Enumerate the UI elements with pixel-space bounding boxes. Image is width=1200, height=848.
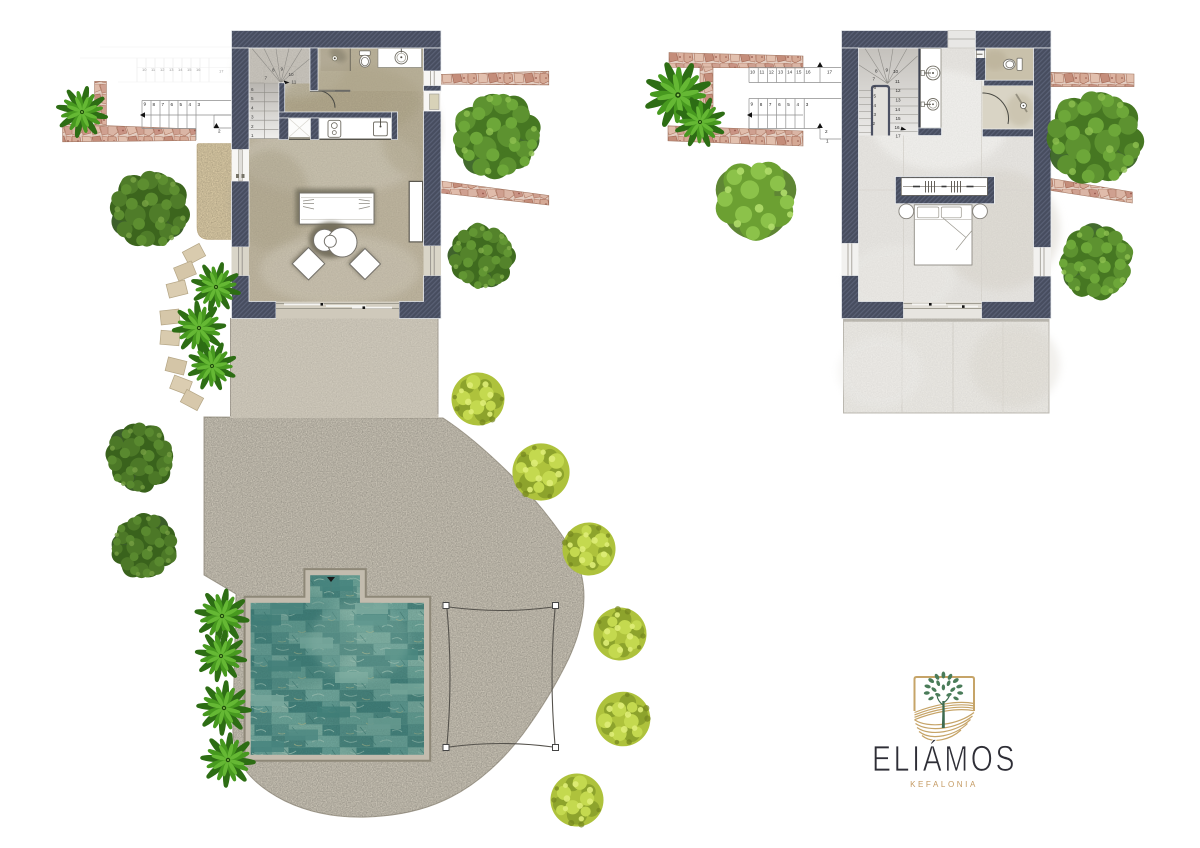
svg-text:ELIÁMOS: ELIÁMOS (872, 738, 1017, 779)
svg-text:KEFALONIA: KEFALONIA (910, 780, 978, 789)
svg-text:13: 13 (896, 98, 902, 103)
svg-text:10: 10 (142, 67, 147, 72)
svg-text:4: 4 (874, 103, 877, 108)
svg-text:10: 10 (893, 69, 899, 74)
svg-text:7: 7 (769, 102, 772, 107)
svg-text:2: 2 (251, 124, 254, 129)
svg-text:16: 16 (196, 67, 201, 72)
svg-text:6: 6 (874, 85, 877, 90)
svg-text:3: 3 (251, 115, 254, 120)
svg-text:12: 12 (769, 70, 775, 75)
svg-text:9: 9 (144, 102, 147, 107)
svg-text:1: 1 (251, 133, 254, 138)
svg-text:7: 7 (265, 76, 268, 81)
svg-text:6: 6 (251, 87, 254, 92)
svg-text:5: 5 (251, 96, 254, 101)
svg-text:15: 15 (187, 67, 192, 72)
svg-text:5: 5 (787, 102, 790, 107)
svg-text:13: 13 (169, 67, 174, 72)
svg-text:4: 4 (797, 102, 800, 107)
svg-text:12: 12 (896, 88, 902, 93)
svg-text:5: 5 (180, 102, 183, 107)
svg-text:14: 14 (178, 67, 183, 72)
svg-text:2: 2 (825, 129, 828, 134)
svg-text:14: 14 (787, 70, 793, 75)
svg-text:14: 14 (895, 107, 901, 112)
svg-text:4: 4 (189, 102, 192, 107)
svg-text:16: 16 (806, 70, 812, 75)
svg-text:9: 9 (886, 68, 889, 73)
svg-text:12: 12 (160, 67, 165, 72)
svg-text:6: 6 (171, 102, 174, 107)
svg-text:17: 17 (896, 134, 902, 139)
svg-text:3: 3 (806, 102, 809, 107)
svg-text:2: 2 (873, 121, 876, 126)
svg-text:9: 9 (281, 67, 284, 72)
svg-text:8: 8 (272, 68, 275, 73)
svg-text:4: 4 (251, 106, 254, 111)
svg-text:11: 11 (292, 80, 297, 85)
svg-text:8: 8 (760, 102, 763, 107)
svg-text:2: 2 (218, 129, 221, 134)
svg-text:10: 10 (289, 72, 295, 77)
svg-text:16: 16 (895, 125, 901, 130)
svg-text:7: 7 (162, 102, 165, 107)
svg-text:3: 3 (874, 112, 877, 117)
svg-text:17: 17 (827, 70, 833, 75)
svg-text:15: 15 (796, 70, 802, 75)
svg-text:15: 15 (896, 116, 902, 121)
svg-text:11: 11 (760, 70, 765, 75)
svg-text:17: 17 (219, 69, 224, 74)
svg-text:1: 1 (826, 139, 829, 144)
svg-text:6: 6 (778, 102, 781, 107)
svg-text:11: 11 (895, 79, 900, 84)
svg-text:10: 10 (750, 70, 756, 75)
svg-text:9: 9 (751, 102, 754, 107)
svg-text:5: 5 (874, 94, 877, 99)
svg-text:7: 7 (873, 77, 876, 82)
svg-text:8: 8 (153, 102, 156, 107)
svg-text:3: 3 (198, 102, 201, 107)
svg-text:13: 13 (778, 70, 784, 75)
svg-text:8: 8 (875, 69, 878, 74)
